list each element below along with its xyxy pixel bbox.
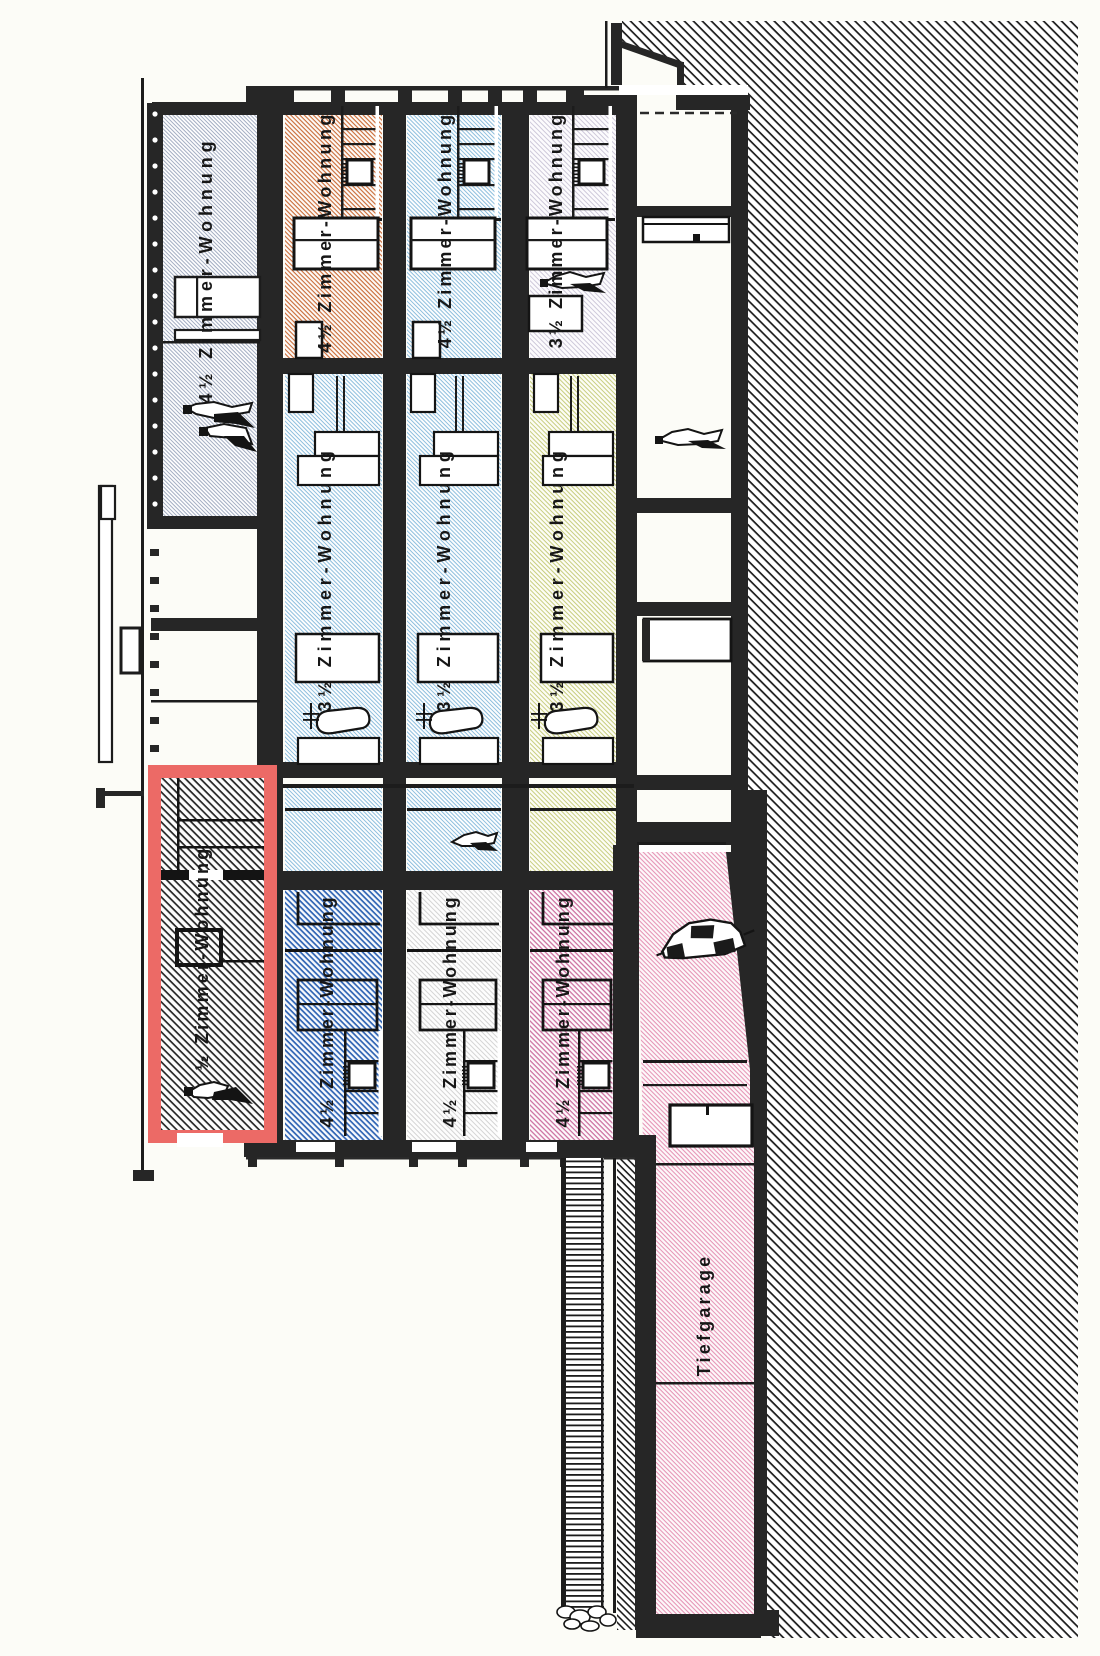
svg-text:3½ Zimmer-Wohnung: 3½ Zimmer-Wohnung [315, 446, 335, 711]
svg-text:Tiefgarage: Tiefgarage [694, 1254, 714, 1377]
svg-text:4½ Zimmer-Wohnung: 4½ Zimmer-Wohnung [196, 137, 216, 404]
svg-text:½ Zimmer-Wohnung: ½ Zimmer-Wohnung [192, 846, 212, 1071]
svg-text:3½ Zimmer-Wohnung: 3½ Zimmer-Wohnung [434, 446, 454, 711]
svg-text:4½ Zimmer-Wohnung: 4½ Zimmer-Wohnung [317, 895, 337, 1128]
svg-text:4½ Zimmer-Wohnung: 4½ Zimmer-Wohnung [440, 895, 460, 1128]
svg-text:4½ Zimmer-Wohnung: 4½ Zimmer-Wohnung [435, 112, 455, 348]
svg-text:3½ Zimmer-Wohnung: 3½ Zimmer-Wohnung [547, 446, 567, 711]
svg-text:4½ Zimmer-Wohnung: 4½ Zimmer-Wohnung [553, 895, 573, 1128]
svg-text:4½ Zimmer-Wohnung: 4½ Zimmer-Wohnung [315, 111, 335, 352]
svg-text:3½ Zimmer-Wohnung: 3½ Zimmer-Wohnung [546, 112, 566, 348]
